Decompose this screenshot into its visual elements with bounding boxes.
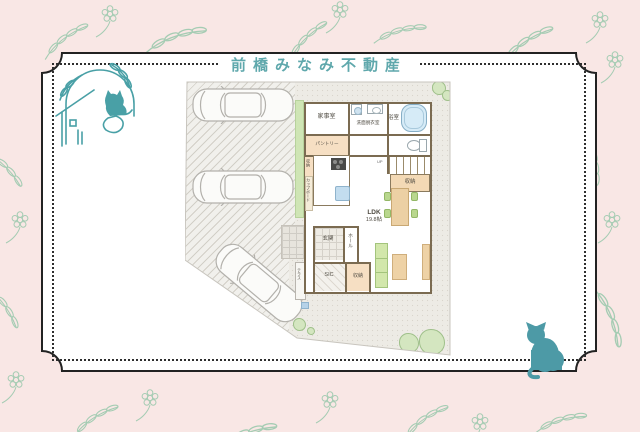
room-label-ldk: LDK — [357, 209, 391, 216]
sofa-icon — [375, 243, 388, 288]
tv-board-icon — [422, 244, 430, 280]
stairs-up-label: UP — [377, 160, 383, 165]
washing-machine-icon — [351, 104, 362, 115]
stepping-mat — [301, 302, 309, 309]
room-label-storage-hall: 収納 — [347, 274, 369, 280]
kitchen-counter — [313, 155, 350, 206]
wall — [304, 134, 432, 136]
planting-strip — [295, 100, 304, 218]
vanity-sink-icon — [367, 104, 383, 114]
kitchen-sink-icon — [335, 186, 350, 201]
room-label-hall: ホール — [347, 233, 354, 248]
terrace-label: テラス — [296, 268, 302, 280]
wall — [348, 134, 350, 155]
wall — [387, 102, 389, 155]
dining-table-icon — [391, 188, 409, 226]
toilet-tank-icon — [419, 139, 427, 152]
wall — [313, 262, 371, 264]
entrance-porch-tiles — [281, 225, 305, 259]
room-label-storage-kitchen: 収納 — [305, 159, 311, 167]
room-label-washroom: 洗面脱衣室 — [348, 120, 388, 125]
room-label-pantry: パントリー — [306, 141, 348, 146]
page-title: 前橋みなみ不動産 — [219, 54, 419, 75]
room-label-cupboard: カップボード — [305, 178, 311, 202]
coffee-table-icon — [392, 254, 407, 280]
wall — [343, 226, 345, 262]
wall — [357, 226, 359, 262]
bathtub-icon — [401, 104, 427, 132]
room-label-ldk-size: 19.8帖 — [357, 217, 391, 223]
stove-icon — [331, 158, 346, 170]
room-label-sic: SIC — [313, 272, 345, 278]
wall — [369, 262, 371, 292]
room-label-storage-stairs: 収納 — [390, 179, 430, 185]
house-branch-cat-logo-icon — [52, 58, 147, 150]
staircase — [389, 157, 430, 174]
entrance-floor — [315, 228, 343, 260]
floor-plan: テラス 家事室 洗面脱衣室 — [185, 78, 455, 372]
chair-icon — [384, 192, 391, 201]
chair-icon — [411, 192, 418, 201]
room-label-entrance: 玄関 — [313, 236, 343, 242]
sitting-cat-silhouette-icon — [520, 322, 570, 380]
wall — [313, 226, 359, 228]
room-label-bathroom: 浴室 — [386, 115, 401, 121]
room-label-utility: 家事室 — [304, 114, 349, 121]
chair-icon — [411, 209, 418, 218]
